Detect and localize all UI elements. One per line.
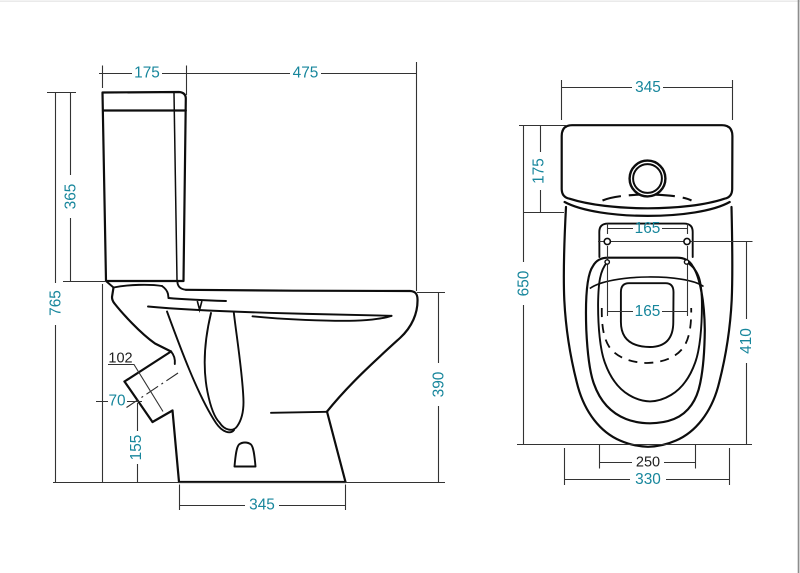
- svg-text:175: 175: [134, 64, 160, 81]
- svg-text:475: 475: [293, 64, 319, 81]
- svg-text:765: 765: [48, 290, 65, 316]
- svg-text:650: 650: [516, 271, 533, 297]
- svg-text:155: 155: [128, 435, 145, 461]
- svg-text:345: 345: [249, 496, 275, 513]
- svg-text:330: 330: [635, 471, 661, 488]
- svg-text:365: 365: [63, 184, 80, 210]
- svg-text:165: 165: [635, 220, 661, 237]
- svg-text:390: 390: [431, 372, 448, 398]
- svg-text:70: 70: [108, 393, 125, 410]
- svg-text:165: 165: [635, 303, 661, 320]
- svg-text:410: 410: [738, 328, 755, 354]
- svg-text:345: 345: [635, 79, 661, 96]
- svg-text:175: 175: [531, 158, 548, 184]
- svg-text:250: 250: [636, 455, 660, 471]
